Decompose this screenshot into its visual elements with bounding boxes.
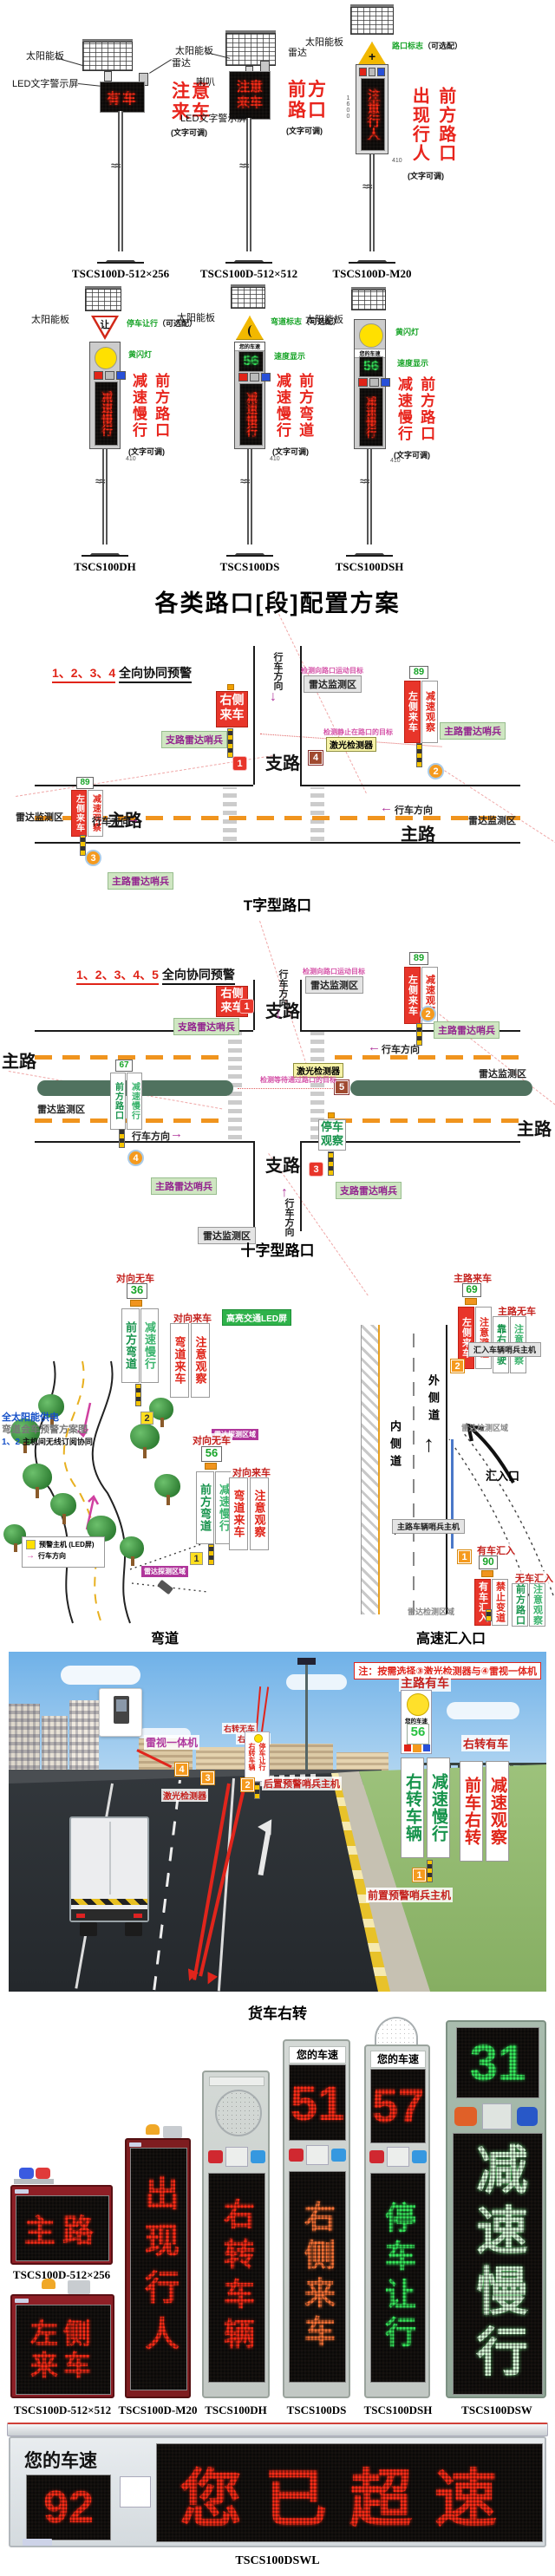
solar-panel [351,290,386,310]
main-road-label-right: 主路 [517,1115,552,1140]
display-cabinet: 减速慢行 [89,342,121,449]
sign-col-watch: 减速观察 [421,681,438,743]
option-label-green: 弯道标志 [271,317,302,326]
speed-title: 您的车速 [24,2447,97,2473]
marker-1: 1 [232,756,247,771]
sign-col-watch: 注意观察 [191,1323,210,1398]
crosswalk [310,787,324,841]
speed-display-label: 速度显示 [274,350,305,362]
beacon-orange [454,2107,477,2126]
center-line [335,1118,520,1123]
cross-glyph: + [369,49,377,63]
marker-4: 4 [309,751,323,765]
cloud [286,1674,347,1690]
curve-sign-top-red: 弯道来车 注意观察 [170,1323,210,1398]
radar-area-label: 雷达探测区域 [141,1566,188,1577]
beacon-chip [130,1300,142,1307]
pole-break-icon: ≈≈ [111,160,119,172]
curve-glyph [248,325,257,337]
speed-sign-cabinet: 您的车速 56 [401,1690,432,1754]
sign-col-slow: 减速慢行 [140,1308,159,1383]
beacon-chip [465,1298,477,1305]
panel-mount [104,71,112,82]
radar-zone-caption: 检测向路口运动目标 [301,666,363,675]
option-label-green: 停车让行 [127,319,158,328]
median-right [350,1080,532,1096]
coord-warning-header: 1、2、3、4 全向协同预警 [52,664,192,681]
led-text: 右转车辆 [214,2198,259,2358]
sign-col-no-change: 禁止变道 [492,1579,508,1626]
warning-col-right: 前方路口 [435,87,454,163]
ground-line [346,555,393,557]
branch-road-edge [300,980,302,1030]
yield-char: 让 [91,317,119,331]
speed-value: 51 [291,2075,344,2131]
mast-lamp [297,1658,316,1665]
mount-bracket [163,2126,182,2138]
sign-antenna [227,684,234,690]
pole-base [357,251,387,262]
branch-sentry-callout: 支路雷达哨兵 [161,731,227,748]
led-display: 主路 [16,2195,109,2261]
sign-pole [80,835,86,856]
solar-label: 太阳能板 [177,310,215,324]
marker-2: 2 [451,1360,464,1373]
ground-line [97,262,144,264]
main-sentry-callout-bottom: 主路雷达哨兵 [108,872,173,890]
warning-col-right: 前方路口 [418,376,434,442]
sync-note: 1、2 主机间无线订阅协同 [2,1434,93,1447]
sign-col-come: 左侧来车 [404,967,421,1024]
truck-taillight [134,1914,142,1918]
horn-label: 喇叭 [196,75,215,88]
radar-camera-label: 雷视一体机 [144,1735,199,1750]
adjustable-note: (文字可调) [171,127,207,138]
pole-base [355,545,384,555]
sign-col-ahead: 前方弯道 [121,1308,140,1383]
led-display: 有车 [100,82,145,113]
marker-3: 3 [309,1162,323,1177]
cabinet: 右转车辆 [202,2071,270,2398]
pole-break-icon: ≈≈ [95,475,103,487]
branch-sentry-top: 支路雷达哨兵 [173,1018,239,1035]
radar-zone-left: 雷达监测区 [16,810,63,824]
beacon-red [238,373,248,382]
radar-label: 雷达 [288,45,307,59]
beacon-blue [251,2150,265,2163]
beacon-blue [331,2149,346,2162]
speed-display: 57 [370,2069,426,2143]
marker-5: 5 [335,1080,349,1094]
warning-col-left: 减速慢行 [395,376,412,442]
header-numbers: 1、2、3、4 [52,666,115,683]
radar-zone-left: 雷达监测区 [37,1102,85,1116]
beacon-mid [250,373,259,382]
marker-3: 3 [85,850,101,866]
down-arrow-icon: ↓ [275,1008,282,1021]
ground-line [82,555,128,557]
branch-road-edge [300,1141,302,1231]
led-text: 减速慢行 [460,2142,536,2385]
control-panel [120,2476,151,2508]
laser-caption: 检测等待通过路口的目标 [260,1075,336,1085]
beacon-red [358,378,368,387]
cloud [61,1666,140,1685]
branch-sign: 右侧 来车 [216,691,248,727]
small-sign-cabinet: 右转车辆 停车让行 [245,1731,270,1782]
flash-light-label: 黄闪灯 [395,326,419,337]
marker-2: 2 [140,1412,153,1425]
cloud [447,1702,519,1719]
big-sign-green-2: 减速慢行 [427,1758,450,1858]
header-text: 全向协同预警 [162,968,235,985]
drive-direction-bottom: 行车方向 [132,1129,170,1143]
width-dim: 410 [392,158,402,164]
truck-taillight [76,1914,85,1918]
option-label: 路口标志（可选配） [392,40,462,51]
speed-value: 31 [470,2034,526,2092]
branch-road-edge [253,1141,255,1231]
ground-line [225,262,272,264]
beacon-red [208,2150,223,2163]
pole-base [106,251,135,262]
beacon-mid [482,2103,512,2129]
sign-col-ahead: 前方路口 [110,1073,126,1130]
right-arrow-icon: → [170,1127,183,1140]
warning-col-left: 减速慢行 [130,373,147,439]
leader-line [78,83,101,87]
crosswalk [223,787,237,841]
flash-light-label: 黄闪灯 [128,349,152,360]
led-text: 您已超速 [180,2448,519,2539]
led-display: 左侧 来车 [16,2305,111,2395]
display-cabinet: 您的车速 56 减速慢行 [234,342,265,449]
height-dim: 1600 [345,95,351,120]
radar-zone-top: 雷达监测区 [305,976,363,994]
page: 太阳能板 雷达 有车 LED文字警示屏 注意来车 (文字可调) ≈≈ TSCS1… [0,0,555,2576]
lane-arrow-icon: ↑ [423,1432,434,1455]
sign-col-ahead: 前方路口 [512,1583,528,1627]
radar-label: 雷达 [172,55,191,69]
led-display: 右转车辆 [208,2173,265,2383]
marker-4: 4 [175,1763,188,1776]
adjustable-note: (文字可调) [408,170,444,181]
warning-text: 减速慢行 前方路口 [130,373,169,439]
up-arrow-icon: ↑ [281,1186,288,1200]
cabinet: 您的车速 92 您已超速 [9,2436,546,2547]
display-cabinet: 注意行人 [356,64,388,154]
sign-col-slow: 减速慢行 [127,1073,142,1130]
sign-col-come: 弯道来车 [229,1477,248,1550]
beacon-chip [205,1463,217,1470]
beacon-disc [215,2090,262,2136]
cabinet: 您的车速 57 停车让行 [364,2044,430,2398]
right-come-label: 右转有车 [461,1735,510,1751]
drive-direction-bottom: 行车方向 [92,814,130,828]
display-cabinet: 您的车速 56 减速慢行 [354,319,386,449]
sign-line2: 观察 [319,1134,345,1148]
marker-1: 1 [458,1550,471,1563]
curve-sign-icon [236,316,264,340]
pole [367,449,372,546]
leader-line [149,59,172,74]
small-sign-col1: 右转车辆 [247,1743,257,1771]
left-arrow-icon: ← [368,1040,381,1053]
model-label: TSCS100D-M20 [277,267,467,281]
header-chip [209,2077,264,2086]
beacon-base [14,2179,54,2184]
truck-caption: 货车右转 [199,2001,356,2023]
warning-text: 前方路口 [288,80,328,121]
led-display: 右侧来车 [289,2171,346,2383]
led-display: 减速慢行 [359,388,383,447]
beacon-blue [517,2107,538,2126]
led-text: 右侧来车 [295,2201,340,2353]
main-sentry-host: 主路车辆哨兵主机 [392,1519,465,1534]
speed-value: 56 [407,1724,429,1745]
pole [369,154,375,253]
junction-sign-icon: + [357,42,387,66]
speed-header: 90 [479,1555,498,1569]
tree [130,1424,160,1458]
page-title: 各类路口[段]配置方案 [0,584,555,618]
beacon-red [36,2168,50,2179]
sign-col-come: 弯道来车 [170,1323,189,1398]
pole [102,449,108,546]
rear-host-label: 后置预警哨兵主机 [262,1777,342,1790]
marker-2: 2 [241,1778,254,1791]
small-flash-light [254,1734,263,1743]
pole [246,118,251,253]
drive-direction-down: 行车方向 [271,652,284,690]
tree [23,1464,52,1498]
pole-break-icon: ≈≈ [362,180,370,192]
legend-arrow-icon: → [26,1551,35,1561]
beacon-blue [377,68,385,76]
curve-caption: 弯道 [104,1627,225,1647]
led-screen-callout: 高亮交通LED屏 [222,1309,291,1326]
legend-dir-label: 行车方向 [38,1551,66,1561]
beacon-mid [369,378,379,387]
solar-label: 太阳能板 [26,49,64,62]
model-label: TSCS100DSH [274,560,465,574]
entry-sentry-host: 汇入车辆哨兵主机 [468,1342,541,1357]
model-label: TSCS100DH [196,2403,276,2417]
speed-value: 57 [372,2079,424,2133]
radar-area-top: 雷达检测区域 [461,1422,508,1433]
warning-col-left: 减速慢行 [274,373,291,439]
pole-break-icon: ≈≈ [360,475,368,487]
marker-1: 1 [190,1552,203,1565]
speed-header: 89 [409,952,428,965]
big-sign-red-1: 前车右转 [460,1761,483,1862]
pole-base [90,545,120,555]
warning-col-right: 前方路口 [153,373,169,439]
sign-pole [227,728,233,758]
sync-numbers: 1、2 [2,1438,20,1447]
tree [154,1474,180,1505]
main-sentry-right: 主路雷达哨兵 [434,1021,499,1039]
led-line2: 来车 [30,2350,96,2382]
device-face [116,1699,127,1712]
model-label: TSCS100DS [277,2403,356,2417]
main-road-edge [35,842,520,844]
sign-pole [328,1151,334,1176]
drive-direction-down: 行车方向 [276,969,290,1008]
option-label-green: 路口标志 [392,42,423,50]
main-sentry-left: 主路雷达哨兵 [151,1177,217,1195]
speed-header: 67 [115,1060,133,1072]
flash-light [359,323,383,348]
yield-sign-icon: 让 [91,316,119,340]
option-label-note: （可选配） [423,42,462,50]
sign-line1: 右侧 [217,693,247,708]
radar-zone-right: 雷达监测区 [479,1066,526,1080]
led-display: 注意行人 [361,78,385,151]
beacon-red [289,2149,304,2162]
truck [69,1816,149,1922]
pole-base [234,251,264,262]
warning-text: 出现行人 前方路口 [409,87,455,163]
model-label: TSCS100DSW [449,2403,545,2417]
branch-road-label-bottom: 支路 [265,1151,300,1177]
solar-label: 太阳能板 [305,312,343,326]
led-display: 您已超速 [156,2443,543,2542]
brand-chip [15,2189,29,2194]
no-oncoming-label: 对向无车 [191,1433,232,1447]
model-label: TSCS100DSWL [208,2554,347,2568]
solar-panel [82,42,133,71]
beacon-chip [481,1570,493,1577]
radar-camera-inset [99,1688,142,1737]
led-text: 主路 [24,2206,101,2251]
inner-lane-label: 内侧道 [387,1420,403,1472]
led-display: 减速慢行 [95,382,118,446]
speed-display: 92 [26,2475,111,2540]
main-road-edge [35,785,253,786]
speed-title: 您的车速 [289,2046,346,2064]
center-line [335,1055,520,1060]
merge-caption: 高速汇入口 [382,1627,520,1647]
stop-watch-sign: 停车 观察 [318,1119,346,1151]
big-sign-red-2: 减速观察 [486,1761,509,1862]
warning-col-left: 出现行人 [409,87,428,163]
sign-pole [486,1609,492,1621]
model-label: TSCS100D-512×512 [2,2403,123,2417]
cabinet: 您的车速 51 右侧来车 [283,2039,350,2398]
marker-4: 4 [127,1150,144,1166]
truck-scene: ▼ ▼ 注：按需选择③激光检测器与④雷视一体机 雷视一体机 4 3 激光检测器 … [9,1652,546,1992]
warning-text: 减速慢行 前方弯道 [274,373,313,439]
beacon-blue [412,2150,427,2163]
beacon-blue [116,371,126,380]
main-come-label: 主路有车 [399,1674,451,1692]
solar-label: 太阳能板 [305,35,343,49]
led-line1: 左侧 [30,2318,96,2350]
width-dim: 410 [390,458,401,464]
legend-box: 预警主机 (LED屏) → 行车方向 [22,1536,105,1568]
cabinet: 31 减速慢行 [446,2020,546,2398]
pole-break-icon: ≈≈ [240,475,248,487]
sign-line1: 停车 [319,1120,345,1134]
mount-bracket [68,2280,90,2294]
led-text: 减速慢行 [98,391,114,436]
marker-2: 2 [428,763,444,779]
speed-header: 36 [127,1283,147,1299]
speed-title: 您的车速 [370,2051,426,2068]
model-label: TSCS100D-M20 [114,2403,201,2417]
main-road-edge [300,785,520,786]
radar-beam [433,763,555,849]
main-road-label-left: 主路 [2,1047,36,1073]
width-dim: 410 [270,456,280,462]
led-text: 有车 [107,87,138,108]
speed-display: 51 [289,2064,346,2141]
header-numbers: 1、2、3、4、5 [76,968,159,985]
pole [247,449,252,546]
speed-display: 56 [238,351,264,372]
speed-header: 69 [462,1283,481,1297]
warning-col-right: 前方弯道 [297,373,313,439]
beacon-blue [261,373,271,382]
led-text: 注意行人 [364,88,382,140]
drive-direction-top: 行车方向 [382,1042,420,1056]
ground-line [349,262,395,264]
speed-display: 31 [456,2027,539,2098]
big-sign-green-1: 右转车辆 [401,1758,424,1858]
sign-col-watch: 注意观察 [529,1583,545,1627]
led-text: 减速慢行 [243,392,259,437]
big-sign-pole [427,1860,433,1882]
radar-zone-right: 雷达监测区 [468,813,516,827]
sign-line2: 来车 [217,708,247,722]
speed-title: 您的车速 [235,342,264,351]
beacon-mid [105,371,114,380]
pole [118,111,123,253]
adjustable-note: (文字可调) [286,125,323,136]
beacon-disc [375,2017,418,2046]
led-text: 停车让行 [375,2201,421,2354]
branch-road-edge [253,646,255,785]
truck-wheel [80,1922,97,1936]
curve-sign-bottom-red: 弯道来车 注意观察 [229,1477,269,1550]
beacon-mid [225,2147,248,2167]
legend-host-icon [26,1540,36,1549]
led-text: 减速慢行 [364,396,379,438]
beacon-red [359,68,367,76]
sync-text: 主机间无线订阅协同 [23,1438,93,1446]
small-sign-col2: 停车让行 [258,1743,267,1771]
pole-break-icon: ≈≈ [239,160,247,172]
truck-door-line [109,1822,111,1895]
merge-sign-bottom-green: 前方路口 注意观察 [512,1583,545,1627]
small-sign-pole [254,1782,260,1799]
sign-pole [119,1129,125,1148]
solar-panel [85,289,121,311]
coord-warning-header: 1、2、3、4、5 全向协同预警 [76,966,235,983]
radar-camera-device [114,1696,129,1724]
screen-label: LED文字警示屏 [180,111,246,125]
led-display: 减速慢行 [453,2133,543,2395]
solar-panel [350,7,394,35]
screen-label: LED文字警示屏 [12,76,78,90]
warning-text: 减速慢行 前方路口 [395,376,434,442]
speed-value: 92 [43,2481,94,2534]
laser-detector-label: 激光检测器 [161,1789,208,1802]
width-dim: 410 [126,456,136,462]
speed-value: 56 [363,359,379,375]
cabinet-lip [7,2423,548,2436]
